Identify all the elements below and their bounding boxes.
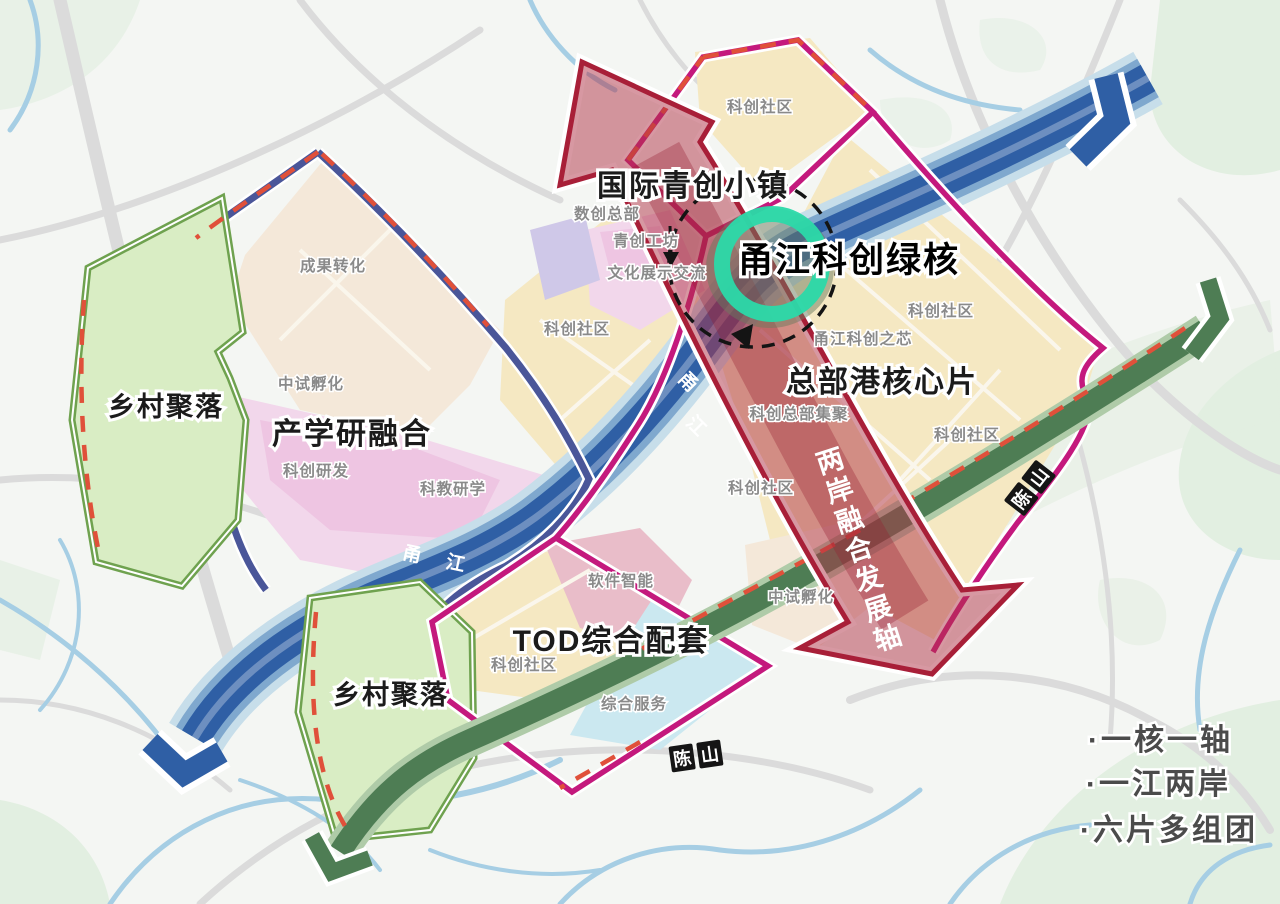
area-label-chengguo-zhuanhua: 成果转化 — [300, 256, 366, 275]
area-label-zhongshi-fuhua-east: 中试孵化 — [768, 587, 834, 606]
area-label-kechuang-shequ-east: 科创社区 — [934, 425, 1000, 444]
area-label-zonghe-fuwu: 综合服务 — [601, 694, 667, 713]
label-hq-port-core: 总部港核心片 — [786, 365, 978, 399]
planning-map: 科创社区 数创总部 青创工坊 文化展示交流 科创社区 科创社区 甬江科创之芯 科… — [0, 0, 1280, 904]
area-label-yongjiang-kechuang-zhixin: 甬江科创之芯 — [813, 329, 912, 348]
area-label-kechuang-shequ-center: 科创社区 — [728, 478, 794, 497]
area-label-ruanjian-zhineng: 软件智能 — [588, 571, 654, 590]
planning-map-stage: 科创社区 数创总部 青创工坊 文化展示交流 科创社区 科创社区 甬江科创之芯 科… — [0, 0, 1280, 904]
label-yongjiang-green-core: 甬江科创绿核 — [738, 241, 960, 280]
area-label-kechuang-zongbu-jiju: 科创总部集聚 — [749, 404, 848, 423]
area-label-qingchuang-gongfang: 青创工坊 — [613, 231, 679, 250]
area-label-kechuang-shequ-west: 科创社区 — [544, 319, 610, 338]
area-label-kechuang-shequ-ne: 科创社区 — [908, 301, 974, 320]
label-industry-academia-research: 产学研融合 — [272, 417, 432, 451]
area-label-kejiao-yanxue: 科教研学 — [420, 479, 486, 498]
area-label-wenhua-zhanshi-jiaoliu: 文化展示交流 — [607, 263, 706, 282]
legend-item-one-core-one-axis: ·一核一轴 — [1088, 724, 1233, 757]
area-label-shuchuang-zongbu: 数创总部 — [574, 204, 640, 223]
label-tod-support: TOD综合配套 — [513, 624, 710, 658]
corridor-label-lower-char1: 陈 — [672, 747, 693, 770]
legend-item-one-river-two-banks: ·一江两岸 — [1086, 768, 1231, 801]
label-international-youth-town: 国际青创小镇 — [597, 170, 789, 203]
area-label-kechuang-yanfa: 科创研发 — [283, 461, 349, 480]
area-label-kechuang-shequ-north: 科创社区 — [727, 97, 793, 116]
corridor-label-lower-char2: 山 — [700, 744, 721, 766]
label-village-south: 乡村聚落 — [333, 680, 449, 710]
label-village-west: 乡村聚落 — [108, 392, 224, 422]
area-label-zhongshi-fuhua-west: 中试孵化 — [278, 374, 344, 393]
legend-item-six-areas-groups: ·六片多组团 — [1080, 813, 1258, 847]
